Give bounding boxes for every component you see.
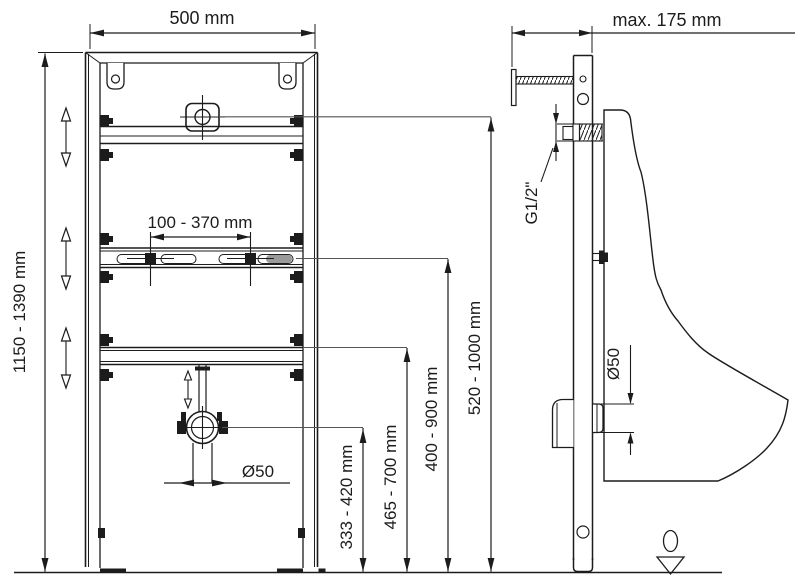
middle-rail — [100, 232, 303, 286]
urinal-outline — [604, 110, 788, 481]
water-connection-thread-label: G1/2" — [522, 182, 541, 225]
lower-rail — [100, 348, 303, 365]
lower-rail-height-label: 465 - 700 mm — [381, 425, 400, 530]
frame-height-label: 1150 - 1390 mm — [10, 251, 29, 374]
drain-assembly — [177, 365, 228, 483]
water-supply-connection — [180, 95, 225, 140]
drain-diameter-label: Ø50 — [242, 462, 274, 481]
water-supply-height-label: 520 - 1000 mm — [465, 301, 484, 415]
installation-drawing-sheet: 500 mm max. 175 mm 1150 - 1390 mm 100 - … — [0, 0, 800, 584]
drain-height-label: 333 - 420 mm — [337, 445, 356, 550]
urinal-frame-technical-drawing: 500 mm max. 175 mm 1150 - 1390 mm 100 - … — [0, 0, 800, 584]
dimension-lines — [38, 24, 795, 572]
frame-width-label: 500 mm — [169, 8, 234, 28]
upper-rail — [100, 127, 303, 144]
middle-rail-height-label: 400 - 900 mm — [422, 367, 441, 472]
wall-fixing-tabs — [107, 63, 296, 89]
outlet-diameter-label: Ø50 — [604, 348, 623, 380]
bolt-spacing-label: 100 - 370 mm — [148, 213, 253, 232]
max-wall-distance-label: max. 175 mm — [612, 10, 721, 30]
